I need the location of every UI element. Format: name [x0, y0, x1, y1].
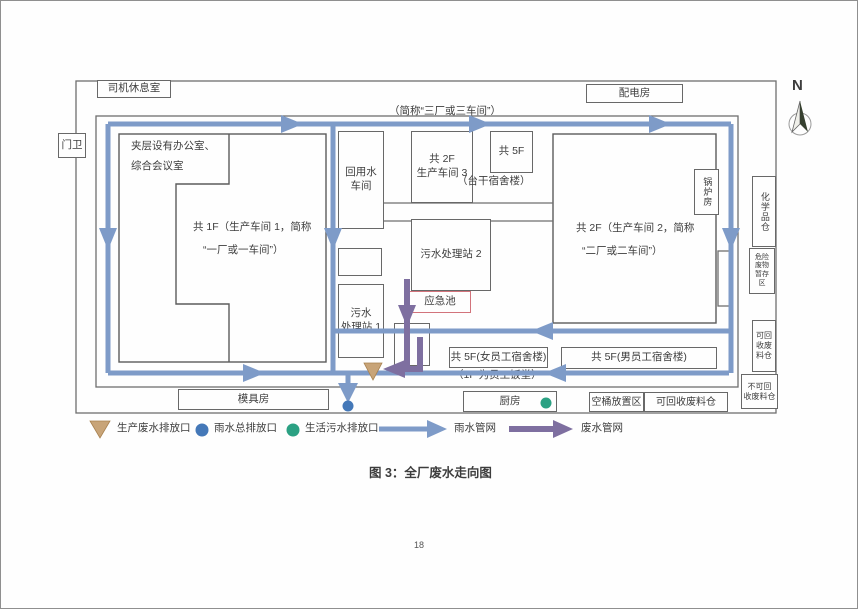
- small-annex-box: [718, 251, 732, 306]
- rain-arrow-right-bottom: [243, 364, 265, 382]
- legend-domestic-outfall-icon: [287, 424, 300, 437]
- rain-arrow-right-1: [281, 115, 303, 133]
- dorm-female: 共 5F(女员工宿舍楼): [449, 347, 548, 368]
- page-number: 18: [414, 540, 424, 551]
- label-taigan-dorm: （台干宿舍楼）: [457, 175, 531, 188]
- room-driver-rest: 司机休息室: [97, 80, 171, 98]
- sewage-station-1: 污水处理站 1: [338, 284, 384, 358]
- room-power-distribution: 配电房: [586, 84, 683, 103]
- small-box-2: [394, 323, 430, 366]
- non-recycle-warehouse: 不可回收废料仓: [741, 374, 778, 409]
- label-workshop1-2: “一厂或一车间”）: [203, 244, 284, 257]
- recycle-warehouse-right: 可回收废料仓: [752, 320, 776, 372]
- legend-rain-pipe-label: 雨水管网: [454, 422, 496, 435]
- legend-domestic-outfall-label: 生活污水排放口: [305, 422, 379, 435]
- label-mezzanine-2: 综合会议室: [131, 160, 184, 173]
- figure-caption: 图 3：全厂废水走向图: [369, 466, 492, 481]
- label-workshop2-1: 共 2F（生产车间 2，简称: [576, 222, 694, 235]
- legend-waste-pipe-arrowhead: [553, 420, 573, 438]
- label-workshop3-alias: （简称“三厂或三车间”）: [389, 105, 501, 118]
- north-label: N: [792, 77, 803, 95]
- label-female-dorm-note: （1F 为员工饭堂）: [453, 369, 542, 382]
- legend-production-outfall-icon: [90, 421, 110, 438]
- room-reuse-water-workshop: 回用水车间: [338, 131, 384, 229]
- room-kitchen: 厨房: [463, 391, 557, 412]
- rain-arrow-down-left: [99, 228, 117, 250]
- legend-waste-pipe-label: 废水管网: [581, 422, 623, 435]
- rain-arrow-down-outfall: [338, 383, 358, 403]
- rain-arrow-down-mid: [324, 228, 342, 250]
- room-boiler: 锅炉房: [694, 169, 719, 215]
- gate-house: 门卫: [58, 133, 86, 158]
- hazardous-waste-storage: 危险废物暂存区: [749, 248, 775, 294]
- rain-arrow-right-3: [649, 115, 671, 133]
- bucket-area: 空桶放置区: [589, 392, 644, 412]
- recycle-warehouse-bottom: 可回收废料仓: [644, 392, 728, 412]
- building-workshop3: 共 2F生产车间 3: [411, 131, 473, 203]
- dorm-taigan: 共 5F: [490, 131, 533, 173]
- legend-rain-pipe-arrowhead: [427, 420, 447, 438]
- legend-rain-outfall-icon: [196, 424, 209, 437]
- rain-outfall-marker: [343, 401, 354, 412]
- rain-arrow-down-right: [722, 228, 740, 250]
- label-mezzanine-1: 夹层设有办公室、: [131, 140, 215, 153]
- rain-arrow-left-mid: [531, 322, 553, 340]
- small-box-1: [338, 248, 382, 276]
- chemical-warehouse: 化学品仓: [752, 176, 776, 247]
- label-workshop2-2: “二厂或二车间”）: [582, 245, 663, 258]
- diagram-page: 司机休息室 配电房 门卫 回用水车间 共 2F生产车间 3 共 5F 污水处理站…: [0, 0, 858, 609]
- label-workshop1-1: 共 1F（生产车间 1，简称: [193, 221, 311, 234]
- legend-rain-outfall-label: 雨水总排放口: [214, 422, 277, 435]
- sewage-station-2: 污水处理站 2: [411, 219, 491, 291]
- dorm-male: 共 5F(男员工宿舍楼): [561, 347, 717, 369]
- production-outfall-marker: [364, 363, 382, 380]
- room-mold: 模具房: [178, 389, 329, 410]
- compass-needle-icon: [789, 101, 811, 135]
- emergency-pool: 应急池: [409, 291, 471, 313]
- legend-production-outfall-label: 生产废水排放口: [117, 422, 191, 435]
